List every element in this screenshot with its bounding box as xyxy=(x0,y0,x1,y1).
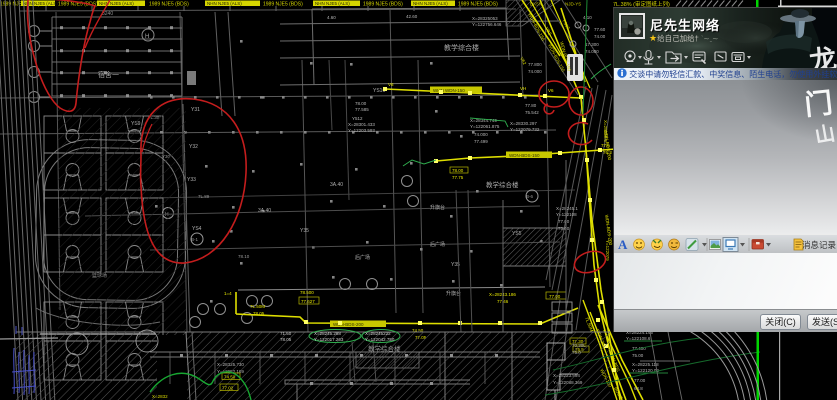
svg-text:H: H xyxy=(145,34,149,40)
svg-text:74.50: 74.50 xyxy=(224,375,236,380)
svg-text:V6: V6 xyxy=(548,88,554,93)
svg-text:门: 门 xyxy=(803,87,834,121)
svg-text:1=4: 1=4 xyxy=(224,291,232,296)
svg-text:64.8: 64.8 xyxy=(634,386,643,391)
svg-text:WDN-BDS-150: WDN-BDS-150 xyxy=(509,153,540,158)
svg-text:WDN-BDS-200: WDN-BDS-200 xyxy=(333,322,364,327)
svg-text:Y=122120.02: Y=122120.02 xyxy=(632,368,659,373)
svg-text:X=28325053: X=28325053 xyxy=(472,16,498,21)
svg-text:78.05: 78.05 xyxy=(253,311,265,316)
svg-text:Y=122108: Y=122108 xyxy=(556,212,577,217)
svg-text:78.10: 78.10 xyxy=(238,254,250,259)
svg-text:X=28245222: X=28245222 xyxy=(365,331,391,336)
svg-text:74.000: 74.000 xyxy=(474,132,488,137)
svg-text:75.542: 75.542 xyxy=(525,110,539,115)
svg-text:Y=122756.646: Y=122756.646 xyxy=(472,22,502,27)
svg-text:NHN NJE5 (ALS): NHN NJE5 (ALS) xyxy=(413,1,448,6)
svg-text:NHN NJE5 (ALS): NHN NJE5 (ALS) xyxy=(207,1,242,6)
svg-text:77.800: 77.800 xyxy=(528,62,542,67)
svg-text:77.00: 77.00 xyxy=(549,294,561,299)
svg-text:78.05: 78.05 xyxy=(280,337,292,342)
svg-text:42.60: 42.60 xyxy=(406,14,418,19)
svg-text:Y=122108.6: Y=122108.6 xyxy=(626,336,651,341)
svg-text:78.00: 78.00 xyxy=(355,101,367,106)
svg-text:后广场: 后广场 xyxy=(355,254,370,261)
svg-text:V8: V8 xyxy=(388,82,394,87)
svg-text:4.10: 4.10 xyxy=(583,15,592,20)
svg-text:X=28330.5: X=28330.5 xyxy=(603,120,608,142)
svg-text:NHN NJE5 (ALS): NHN NJE5 (ALS) xyxy=(315,1,350,6)
svg-text:77.80: 77.80 xyxy=(525,103,537,108)
svg-text:78.500: 78.500 xyxy=(300,290,314,295)
svg-text:3A.40: 3A.40 xyxy=(258,208,271,214)
svg-text:教学综合楼: 教学综合楼 xyxy=(486,180,519,189)
svg-text:升旗台: 升旗台 xyxy=(446,290,461,297)
svg-text:B-6: B-6 xyxy=(526,194,534,199)
svg-text:消息记录: 消息记录 xyxy=(802,240,837,250)
svg-text:A: A xyxy=(618,237,628,252)
svg-text:升旗台: 升旗台 xyxy=(430,204,445,211)
svg-text:7L.50M: 7L.50M xyxy=(250,304,265,309)
svg-text:Y=122079: Y=122079 xyxy=(605,240,610,261)
svg-text:后广场: 后广场 xyxy=(430,241,445,248)
svg-text:X=28301.433: X=28301.433 xyxy=(348,122,375,127)
svg-text:74.00: 74.00 xyxy=(594,34,606,39)
svg-text:3A.40: 3A.40 xyxy=(330,182,343,188)
svg-text:Y33: Y33 xyxy=(187,177,196,183)
svg-text:77.585: 77.585 xyxy=(355,107,369,112)
svg-text:NHN NJE5 (ALS): NHN NJE5 (ALS) xyxy=(99,1,134,6)
svg-text:4.60: 4.60 xyxy=(327,15,336,20)
svg-text:1989 NJE5 (BDS): 1989 NJE5 (BDS) xyxy=(263,2,303,8)
svg-text:山: 山 xyxy=(813,122,837,148)
svg-text:Y=122079.732: Y=122079.732 xyxy=(510,127,540,132)
svg-text:YS4: YS4 xyxy=(192,226,202,232)
svg-text:Y=122017.263: Y=122017.263 xyxy=(314,337,344,342)
svg-text:Y=122061.875: Y=122061.875 xyxy=(470,124,500,129)
svg-text:Y=122042.750: Y=122042.750 xyxy=(365,337,395,342)
svg-text:NJD-YS: NJD-YS xyxy=(565,2,581,7)
svg-text:77.00: 77.00 xyxy=(634,378,646,383)
svg-text:77.60: 77.60 xyxy=(594,27,606,32)
svg-text:7L.89: 7L.89 xyxy=(198,194,210,199)
svg-text:77.02: 77.02 xyxy=(222,386,234,391)
svg-text:VH: VH xyxy=(520,86,526,91)
svg-text:B-1: B-1 xyxy=(191,237,199,242)
svg-text:X=2832: X=2832 xyxy=(152,394,168,399)
svg-text:77.75: 77.75 xyxy=(452,175,464,180)
svg-text:75.00: 75.00 xyxy=(632,353,644,358)
svg-text:Y512: Y512 xyxy=(352,116,363,121)
svg-text:X=28330.297: X=28330.297 xyxy=(510,121,537,126)
svg-text:X=28245.288: X=28245.288 xyxy=(314,331,341,336)
svg-text:1989 NJE5 (BDS): 1989 NJE5 (BDS) xyxy=(363,2,403,8)
svg-text:WHN WDN-150: WHN WDN-150 xyxy=(433,88,465,93)
svg-text:Y=12203.593: Y=12203.593 xyxy=(348,128,375,133)
svg-text:教学综合楼: 教学综合楼 xyxy=(444,43,479,52)
svg-text:1989 NJE5 (BDS): 1989 NJE5 (BDS) xyxy=(458,2,498,8)
svg-text:宿舍一: 宿舍一 xyxy=(98,70,119,79)
svg-text:1989 NJE5 (BDS): 1989 NJE5 (BDS) xyxy=(149,2,189,8)
svg-text:77.627: 77.627 xyxy=(301,299,315,304)
svg-text:77.499: 77.499 xyxy=(474,139,488,144)
svg-text:74.000: 74.000 xyxy=(585,49,599,54)
svg-text:Y32: Y32 xyxy=(189,144,198,150)
svg-text:X=28245.1: X=28245.1 xyxy=(556,206,578,211)
svg-text:77.00: 77.00 xyxy=(558,219,570,224)
svg-text:Y31: Y31 xyxy=(191,107,200,113)
svg-text:71.50: 71.50 xyxy=(280,331,292,336)
svg-text:17.300: 17.300 xyxy=(585,42,599,47)
svg-text:Y35: Y35 xyxy=(300,228,309,234)
svg-text:74.000: 74.000 xyxy=(528,69,542,74)
svg-text:78.00: 78.00 xyxy=(452,168,464,173)
